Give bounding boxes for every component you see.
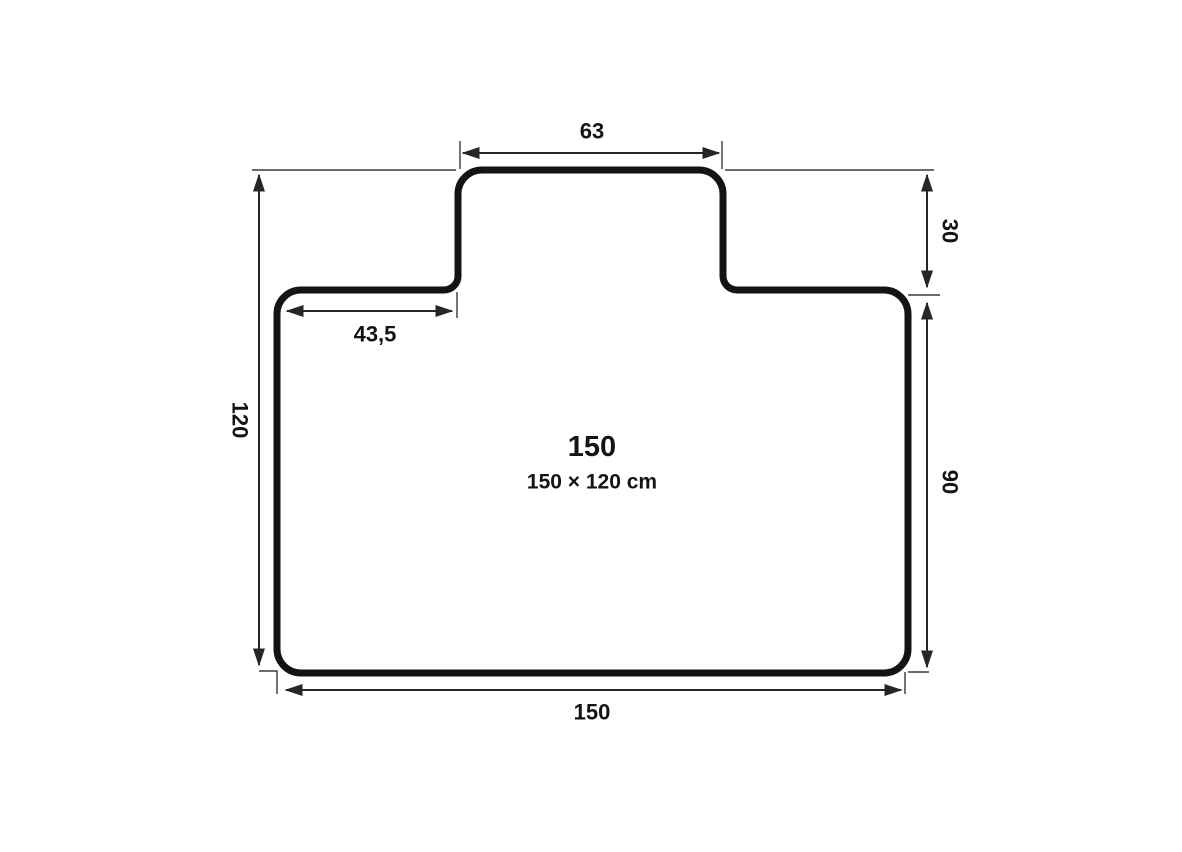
dim-total-width: 150 bbox=[286, 690, 901, 725]
dim-label-body-height: 90 bbox=[938, 470, 963, 494]
dim-label-shoulder-width: 43,5 bbox=[354, 322, 397, 347]
dim-body-height: 90 bbox=[927, 303, 963, 667]
chair-mat-dimension-diagram: 63 30 90 120 43,5 150 150 1 bbox=[0, 0, 1182, 852]
dim-tab-height: 30 bbox=[927, 175, 963, 287]
ext-line-bottom-left-step bbox=[259, 671, 277, 694]
dim-label-tab-width: 63 bbox=[580, 119, 604, 144]
mat-size-secondary-label: 150 × 120 cm bbox=[527, 471, 657, 494]
dim-label-total-height: 120 bbox=[228, 402, 253, 439]
diagram-canvas: 63 30 90 120 43,5 150 150 1 bbox=[0, 0, 1182, 852]
dim-total-height: 120 bbox=[228, 175, 260, 665]
mat-outline bbox=[277, 170, 908, 673]
dim-label-tab-height: 30 bbox=[938, 219, 963, 243]
dim-label-total-width: 150 bbox=[574, 700, 611, 725]
dim-tab-width: 63 bbox=[463, 119, 719, 154]
mat-size-primary-label: 150 bbox=[568, 431, 616, 463]
